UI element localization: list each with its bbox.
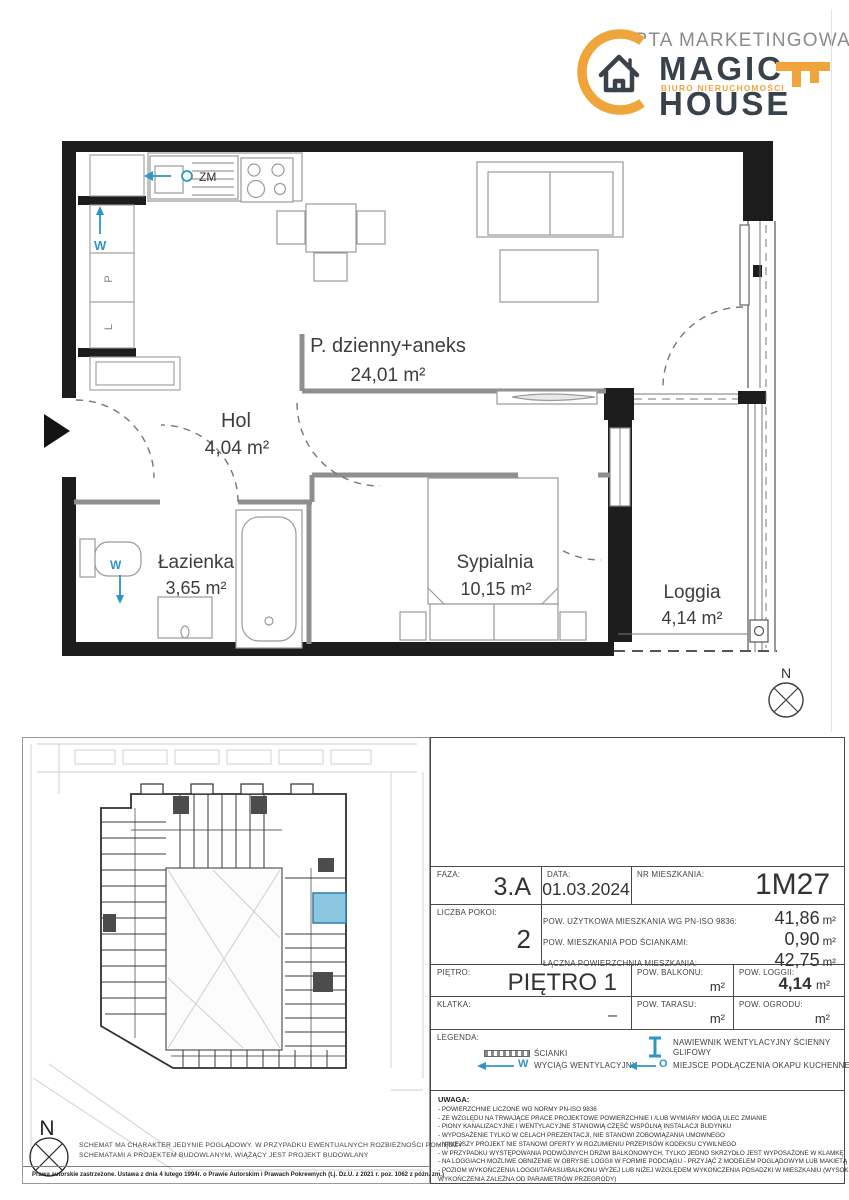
page-edge-line xyxy=(831,10,832,732)
area-label: ŁĄCZNA POWIERZCHNIA MIESZKANIA: xyxy=(543,959,697,968)
notes-title: UWAGA: xyxy=(438,1095,469,1104)
data-value: 01.03.2024 xyxy=(542,879,630,900)
note-line: - PIONY KANALIZACYJNE I WENTYLACYJNE STA… xyxy=(438,1123,838,1132)
table-line xyxy=(431,866,844,867)
notes-list: - POWIERZCHNIE LICZONE WG NORMY PN-ISO 9… xyxy=(438,1106,838,1184)
marketing-card-page: KARTA MARKETINGOWA MAGIC BIURO NIERUCHOM… xyxy=(0,0,849,1200)
area-unit: m² xyxy=(823,915,836,927)
hood-arrow-icon xyxy=(627,1060,657,1072)
vent-marker: W xyxy=(94,238,107,253)
room-label-bath: Łazienka xyxy=(158,552,234,573)
fridge-box xyxy=(90,155,144,196)
coffee-table xyxy=(500,250,598,302)
note-line: - W PRZYPADKU WYSTĘPOWANIA PODWÓJNYCH DR… xyxy=(438,1150,838,1159)
area-unit: m² xyxy=(823,936,836,948)
loggia-value-wrap: 4,14 m² xyxy=(733,974,830,994)
diffuser-legend-label-2: GLIFOWY xyxy=(673,1048,711,1057)
entrance-arrow-icon xyxy=(44,414,70,448)
siteplan-compass-n: N xyxy=(39,1117,54,1140)
note-line: - POZIOM WYKOŃCZENIA LOGGII/TARASU/BALKO… xyxy=(438,1167,838,1176)
room-area-bed: 10,15 m² xyxy=(460,579,531,599)
balkon-label: POW. BALKONU: xyxy=(637,968,703,977)
pietro-value: PIĘTRO 1 xyxy=(431,969,617,997)
area-value: 42,75 xyxy=(775,950,820,970)
walls-legend-label: ŚCIANKI xyxy=(534,1049,567,1058)
closet-l-marker: L xyxy=(103,324,115,330)
info-panel: FAZA: 3.A DATA: 01.03.2024 NR MIESZKANIA… xyxy=(430,737,845,1184)
taras-label: POW. TARASU: xyxy=(637,1000,696,1009)
area-label: POW. UŻYTKOWA MIESZKANIA WG PN-ISO 9836: xyxy=(543,917,737,926)
klatka-value: – xyxy=(431,1007,617,1025)
note-line: WYKOŃCZENIA ZALEŻNA OD PARAMETRÓW PRZEGR… xyxy=(438,1176,838,1185)
highlighted-unit xyxy=(313,893,346,923)
taras-unit: m² xyxy=(631,1011,725,1026)
walls-symbol-icon xyxy=(484,1050,530,1057)
sink-marker: ZM xyxy=(199,170,216,184)
wc-vent-marker: W xyxy=(110,558,122,572)
table-line xyxy=(541,904,542,964)
dining-set xyxy=(277,204,385,281)
nr-mieszkania-value: 1M27 xyxy=(631,868,830,902)
area-value: 41,86 xyxy=(775,908,820,928)
diffuser-symbol-icon xyxy=(646,1035,664,1059)
living-furniture xyxy=(477,162,623,404)
kitchen xyxy=(148,153,302,202)
siteplan-drawing: N xyxy=(23,738,429,1183)
vent-arrow-icon xyxy=(476,1060,516,1072)
vent-legend-label: WYCIĄG WENTYLACYJNY xyxy=(534,1061,637,1070)
bathtub xyxy=(236,510,302,648)
legend-title: LEGENDA: xyxy=(437,1033,479,1042)
ogrod-unit: m² xyxy=(733,1011,830,1026)
stove xyxy=(241,158,293,202)
wc-tank xyxy=(80,539,95,577)
wc-vent-arrow-icon xyxy=(116,575,124,604)
area-unit: m² xyxy=(823,957,836,969)
siteplan-building xyxy=(101,784,346,1068)
nightstand-left xyxy=(400,612,426,640)
ogrod-label: POW. OGRODU: xyxy=(739,1000,803,1009)
room-label-loggia: Loggia xyxy=(663,582,720,603)
balkon-unit: m² xyxy=(631,979,725,994)
area-label: POW. MIESZKANIA POD ŚCIANKAMI: xyxy=(543,938,688,947)
washbasin xyxy=(158,597,212,638)
hood-symbol: O xyxy=(659,1058,668,1070)
room-area-loggia: 4,14 m² xyxy=(661,608,722,628)
area-value: 0,90 xyxy=(785,929,820,949)
room-label-hall: Hol xyxy=(221,410,251,432)
room-area-living: 24,01 m² xyxy=(351,365,426,386)
copyright-note: Prawa autorskie zastrzeżone. Ustawa z dn… xyxy=(32,1171,444,1178)
balcony-door-leaf xyxy=(740,225,749,305)
faza-value: 3.A xyxy=(431,873,531,902)
room-label-living: P. dzienny+aneks xyxy=(310,335,466,357)
area-row: POW. UŻYTKOWA MIESZKANIA WG PN-ISO 9836:… xyxy=(543,908,836,929)
liczba-pokoi-value: 2 xyxy=(431,924,531,955)
compass-icon xyxy=(769,683,803,717)
diffuser-legend-label-1: NAWIEWNIK WENTYLACYJNY ŚCIENNY xyxy=(673,1038,831,1047)
area-row: POW. MIESZKANIA POD ŚCIANKAMI: 0,90m² xyxy=(543,929,836,950)
siteplan-disclaimer-line1: SCHEMAT MA CHARAKTER JEDYNIE POGLĄDOWY. … xyxy=(79,1142,463,1149)
closet-p-marker: P xyxy=(103,275,115,282)
loggia-value: 4,14 xyxy=(778,974,811,993)
siteplan-disclaimer-line2: SCHEMATAMI A PROJEKTEM BUDOWLANYM, WIĄŻĄ… xyxy=(79,1152,369,1159)
panel-divider xyxy=(23,1166,429,1167)
note-line: - WYPOSAŻENIE TYLKO W CELACH PREZENTACJI… xyxy=(438,1132,838,1141)
room-area-bath: 3,65 m² xyxy=(165,578,226,598)
siteplan-panel: N SCHEMAT MA CHARAKTER JEDYNIE POGLĄDOWY… xyxy=(22,737,430,1184)
loggia-unit: m² xyxy=(816,978,830,992)
vent-symbol: W xyxy=(518,1058,528,1070)
compass-n-label: N xyxy=(781,665,791,681)
table-line xyxy=(431,1029,844,1030)
table-line xyxy=(431,904,844,905)
table-line xyxy=(431,1090,844,1091)
room-area-hall: 4,04 m² xyxy=(205,438,269,459)
room-label-bed: Sypialnia xyxy=(456,552,534,573)
note-line: - POWIERZCHNIE LICZONE WG NORMY PN-ISO 9… xyxy=(438,1106,838,1115)
hood-legend-label: MIEJSCE PODŁĄCZENIA OKAPU KUCHENNEGO xyxy=(673,1061,849,1070)
loggia-drain xyxy=(750,620,768,642)
apartment-floorplan: ZM W P L xyxy=(0,0,849,737)
note-line: - NA LOGGIACH MOŻLIWE OBNIŻENIE W OBRYSI… xyxy=(438,1158,838,1167)
liczba-pokoi-label: LICZBA POKOI: xyxy=(437,908,497,917)
note-line: - NINIEJSZY PROJEKT NIE STANOWI OFERTY W… xyxy=(438,1141,838,1150)
nightstand-right xyxy=(560,612,586,640)
data-label: DATA: xyxy=(547,870,570,879)
